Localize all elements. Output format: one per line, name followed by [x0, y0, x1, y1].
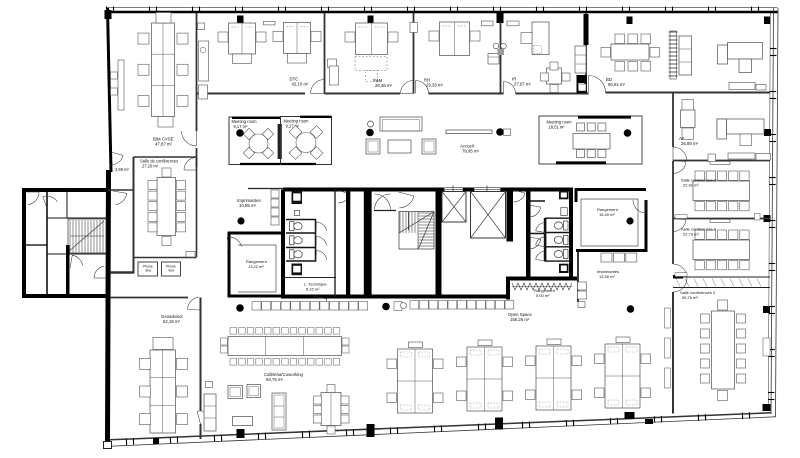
svg-text:13,22 m²: 13,22 m²	[248, 264, 264, 269]
svg-text:29,33 m²: 29,33 m²	[426, 83, 444, 88]
svg-text:42,10 m²: 42,10 m²	[292, 82, 310, 87]
svg-text:18,51 m²: 18,51 m²	[549, 125, 566, 130]
svg-text:15,49 m²: 15,49 m²	[599, 212, 615, 217]
svg-text:Box: Box	[169, 269, 175, 273]
svg-text:47,87 m²: 47,87 m²	[155, 142, 173, 147]
svg-text:13,26 m²: 13,26 m²	[599, 274, 615, 279]
svg-text:9,17 m²: 9,17 m²	[234, 124, 249, 129]
svg-text:156,26 m²: 156,26 m²	[510, 317, 530, 322]
svg-text:55,76 m²: 55,76 m²	[682, 295, 698, 300]
svg-text:22,73 m²: 22,73 m²	[683, 232, 699, 237]
svg-text:52,18 m²: 52,18 m²	[163, 319, 181, 324]
svg-text:93,75 m²: 93,75 m²	[266, 377, 284, 382]
svg-text:26,89 m²: 26,89 m²	[681, 141, 699, 146]
svg-text:22,91 m²: 22,91 m²	[683, 183, 699, 188]
svg-text:2,89 m²: 2,89 m²	[115, 167, 130, 172]
svg-text:60,91 m²: 60,91 m²	[608, 82, 626, 87]
svg-text:5,00 m²: 5,00 m²	[536, 293, 550, 298]
svg-text:78,95 m²: 78,95 m²	[462, 149, 480, 154]
svg-text:10,85 m²: 10,85 m²	[239, 203, 257, 208]
svg-text:27,10 m²: 27,10 m²	[142, 164, 159, 169]
svg-text:Box: Box	[146, 269, 152, 273]
svg-text:27,67 m²: 27,67 m²	[514, 82, 532, 87]
svg-text:26,36 m²: 26,36 m²	[375, 83, 393, 88]
svg-text:5,15 m²: 5,15 m²	[306, 287, 320, 292]
